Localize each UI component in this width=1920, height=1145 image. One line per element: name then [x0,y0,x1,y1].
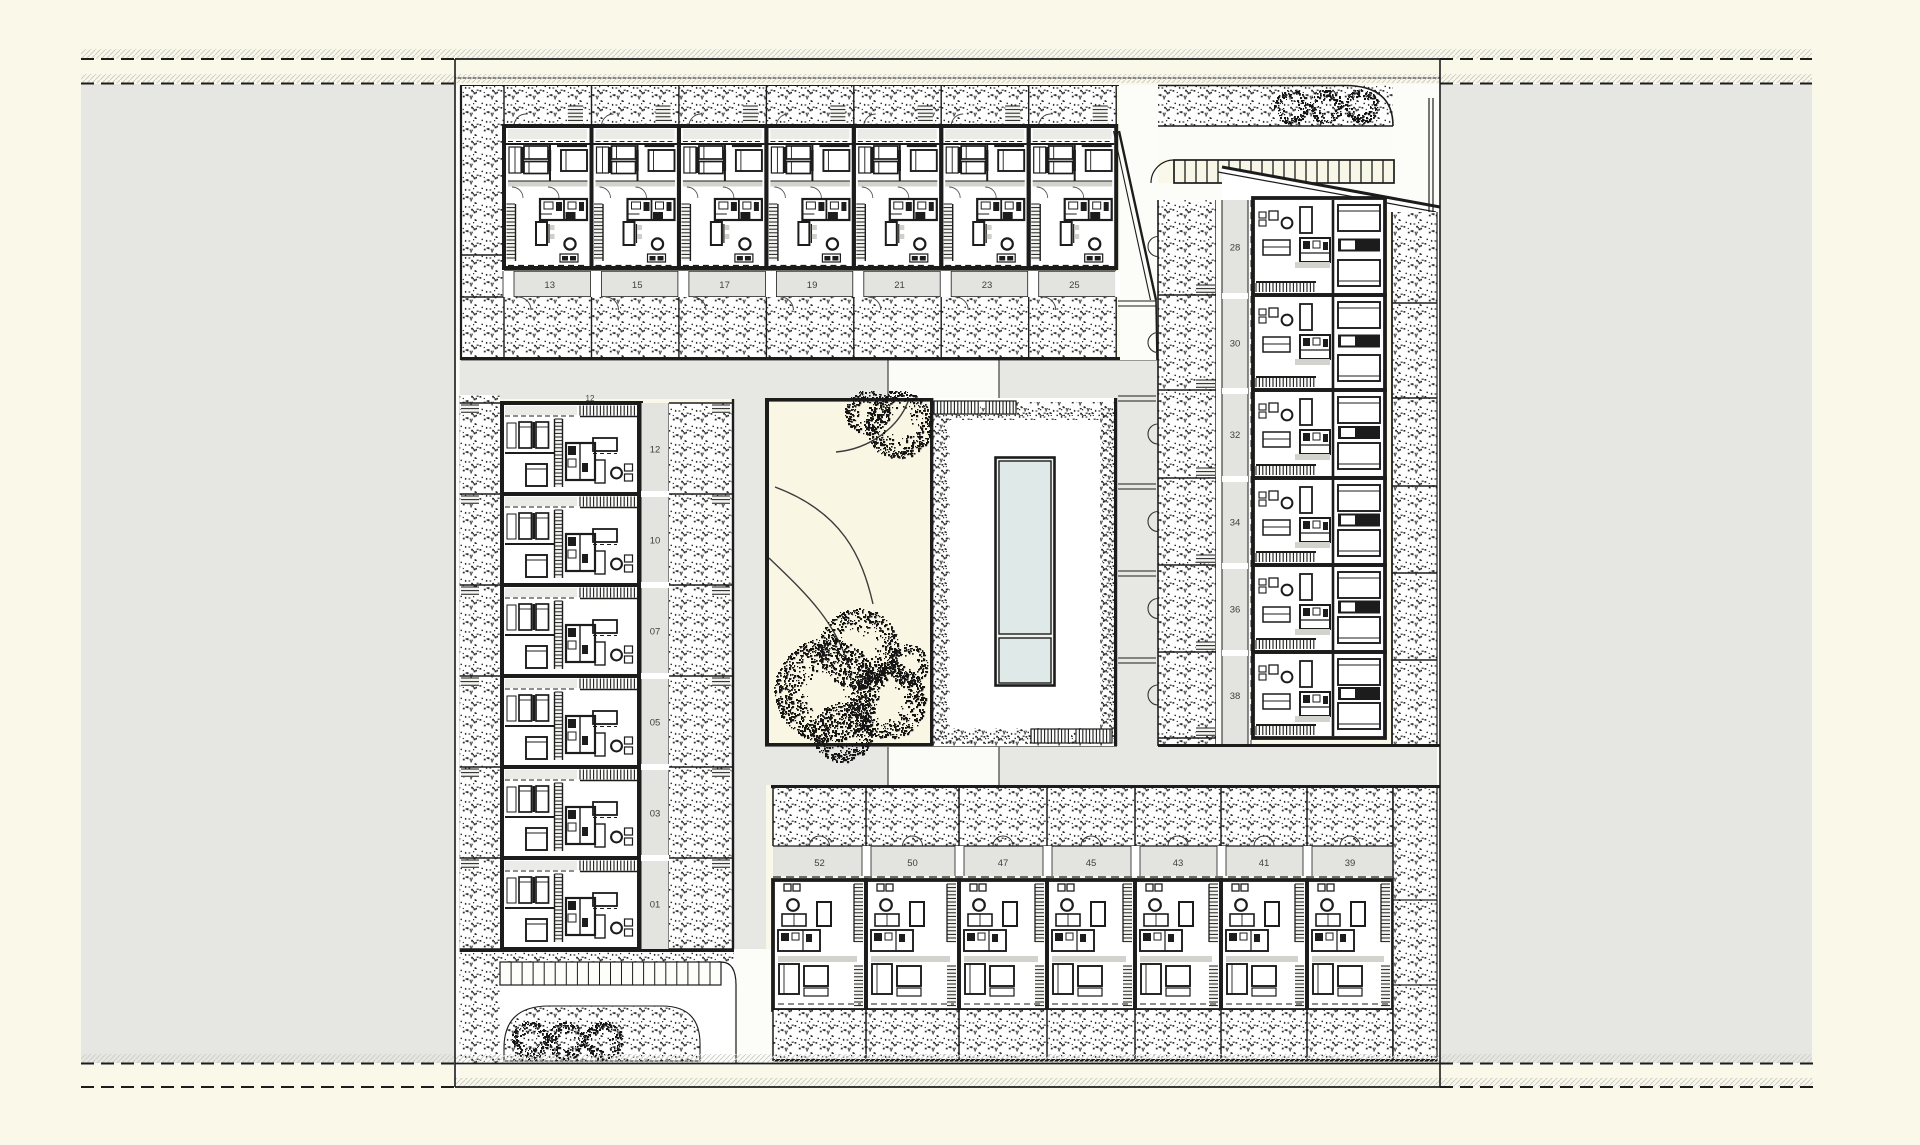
svg-text:39: 39 [1345,858,1356,869]
svg-text:34: 34 [1230,518,1241,529]
svg-text:52: 52 [814,858,825,869]
svg-text:12: 12 [650,445,661,456]
svg-text:13: 13 [544,280,555,291]
svg-text:10: 10 [650,536,661,547]
svg-text:25: 25 [1069,280,1080,291]
svg-text:19: 19 [807,280,818,291]
svg-text:47: 47 [998,858,1009,869]
svg-text:17: 17 [719,280,730,291]
svg-text:45: 45 [1086,858,1097,869]
svg-text:28: 28 [1230,243,1241,254]
svg-text:03: 03 [650,809,661,820]
svg-text:43: 43 [1173,858,1184,869]
svg-text:38: 38 [1230,691,1241,702]
svg-text:07: 07 [650,627,661,638]
svg-text:05: 05 [650,718,661,729]
svg-text:12: 12 [586,394,595,403]
svg-text:23: 23 [982,280,993,291]
svg-text:15: 15 [632,280,643,291]
svg-text:21: 21 [894,280,905,291]
svg-text:30: 30 [1230,339,1241,350]
svg-text:36: 36 [1230,605,1241,616]
svg-text:50: 50 [907,858,918,869]
svg-text:41: 41 [1259,858,1270,869]
svg-text:32: 32 [1230,430,1241,441]
svg-text:01: 01 [650,900,661,911]
